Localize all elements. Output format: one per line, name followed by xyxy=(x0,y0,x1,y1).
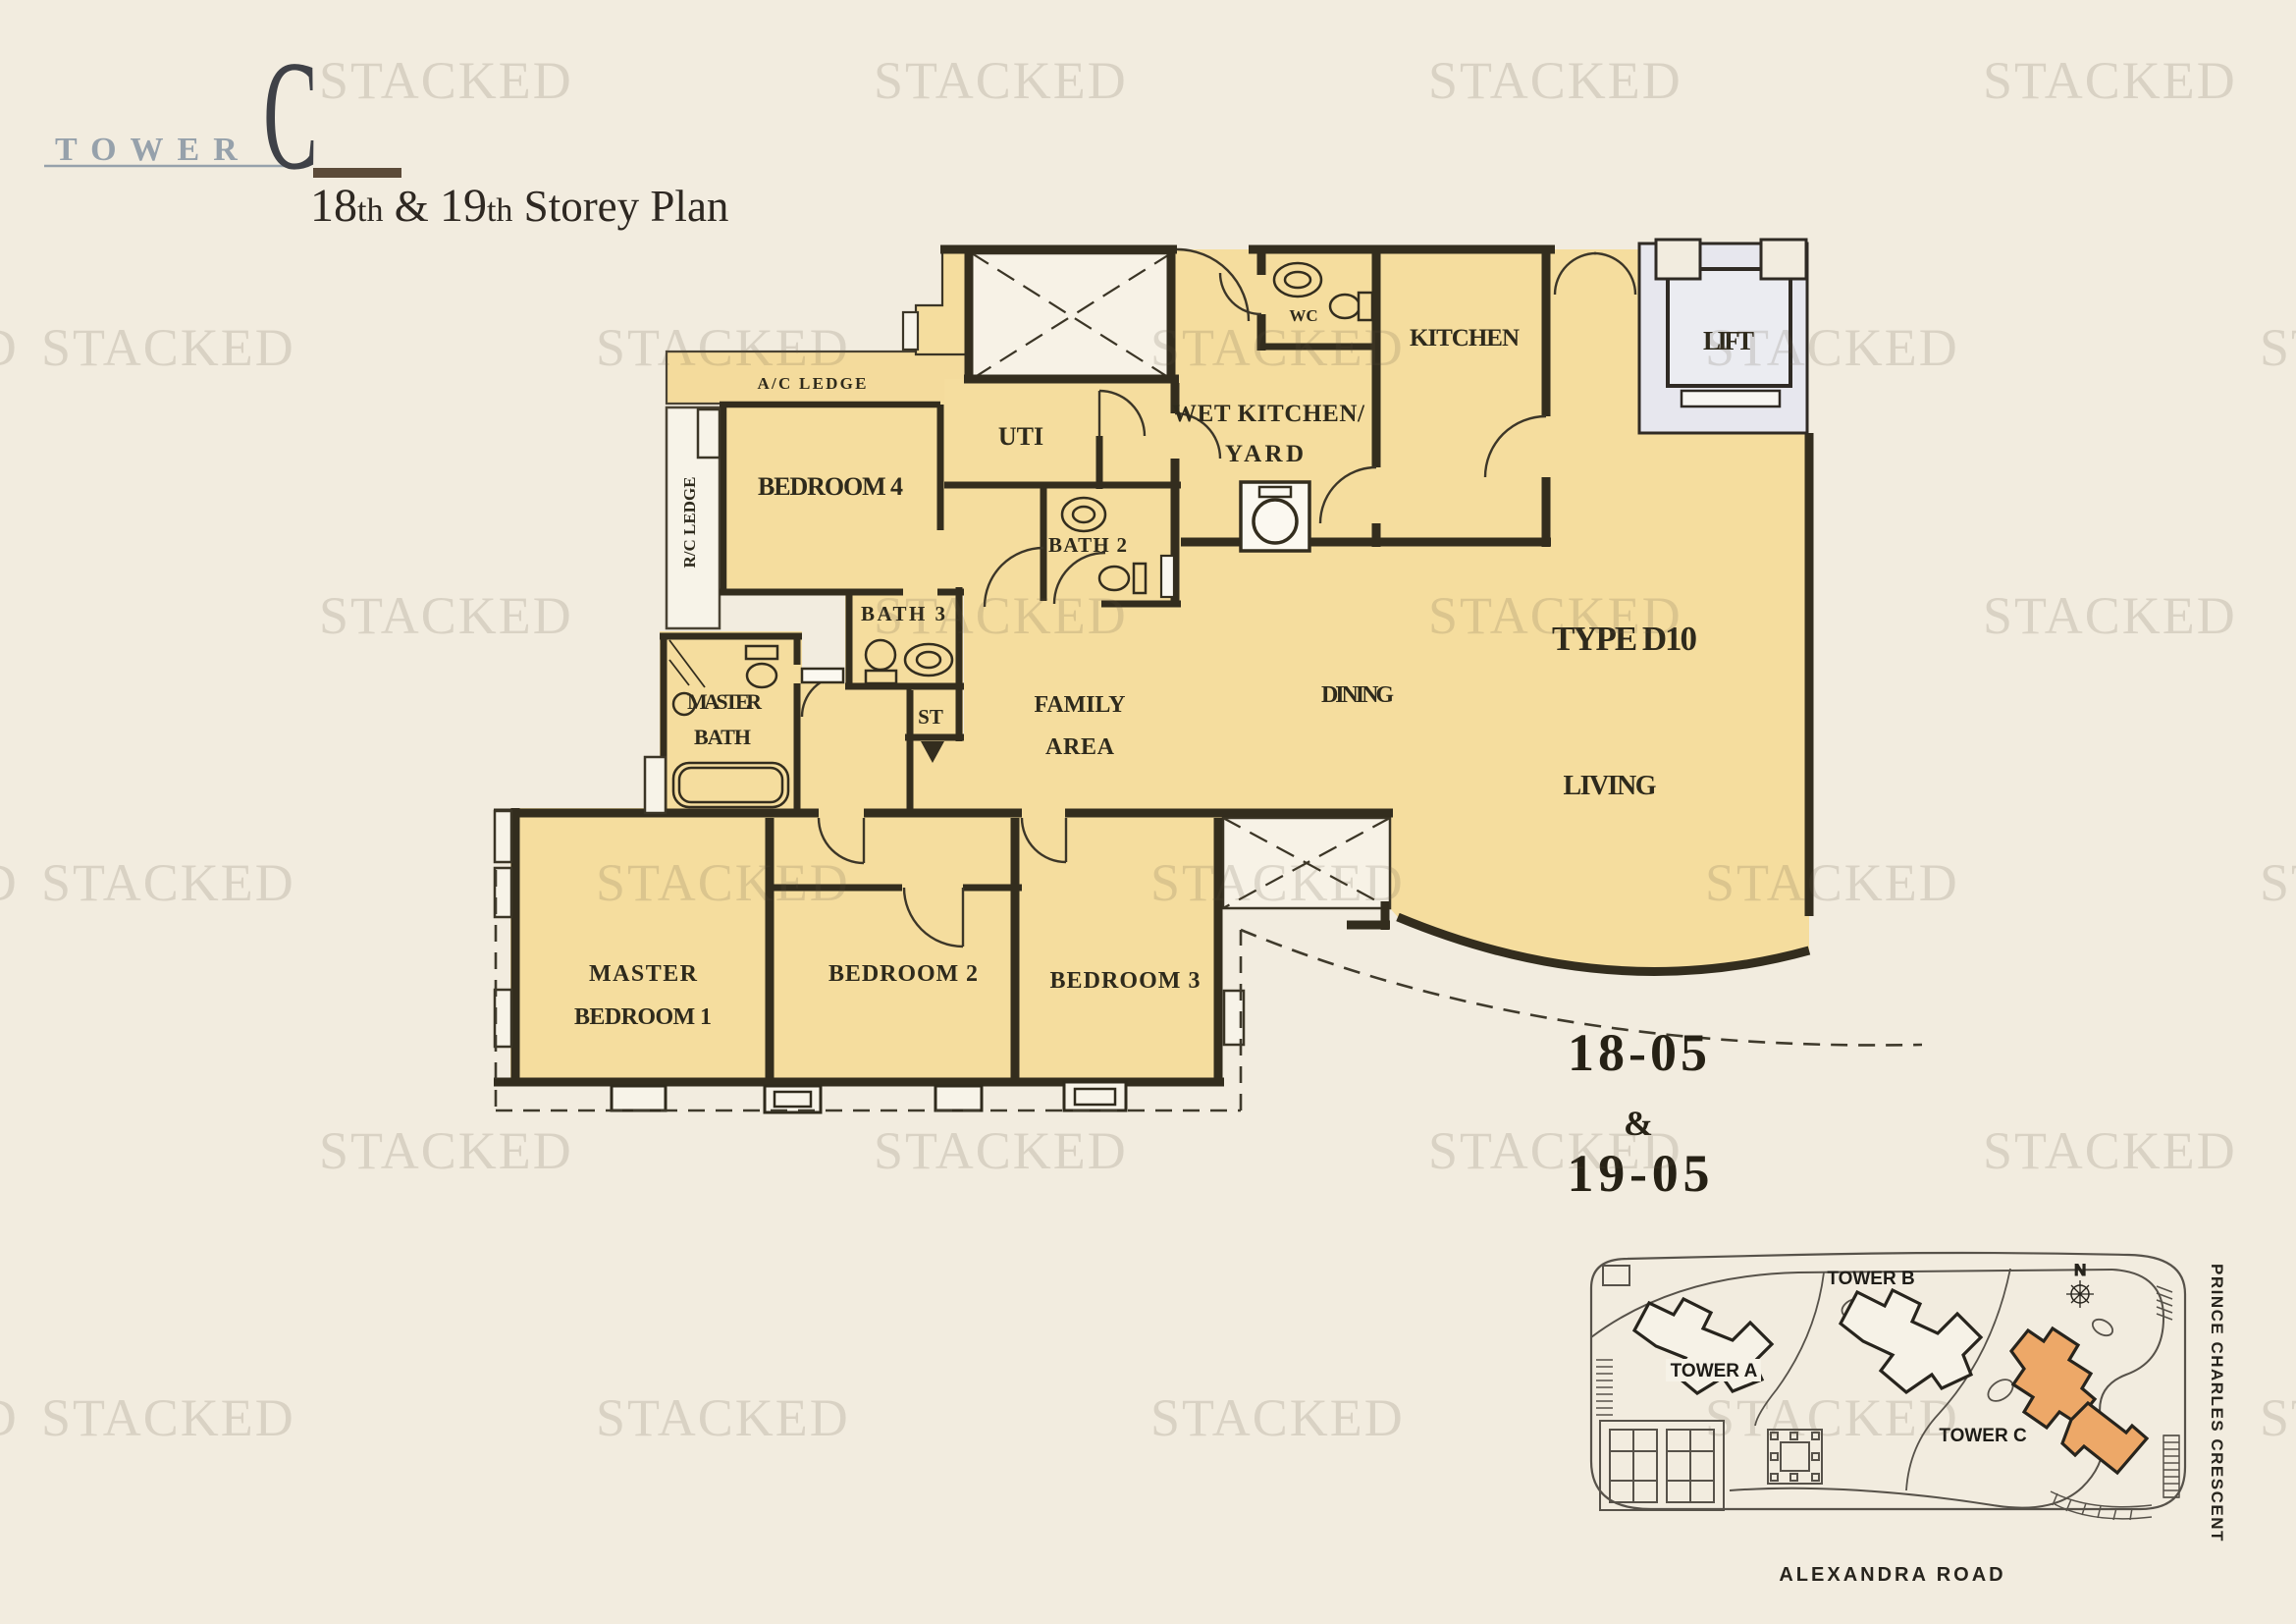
svg-text:STACKED: STACKED xyxy=(1150,853,1405,912)
svg-text:18-05: 18-05 xyxy=(1568,1023,1707,1082)
svg-text:MASTER: MASTER xyxy=(589,961,698,987)
svg-text:STACKED: STACKED xyxy=(319,1121,573,1180)
svg-text:BEDROOM 3: BEDROOM 3 xyxy=(1050,968,1201,994)
svg-text:BEDROOM 2: BEDROOM 2 xyxy=(828,961,978,987)
svg-text:R/C LEDGE: R/C LEDGE xyxy=(680,476,699,568)
svg-text:STACKED: STACKED xyxy=(1428,586,1682,645)
svg-text:STACKED: STACKED xyxy=(1705,1388,1959,1447)
svg-text:STACKED: STACKED xyxy=(41,1388,295,1447)
svg-text:YARD: YARD xyxy=(1225,441,1304,467)
svg-text:STACKED: STACKED xyxy=(2260,1388,2296,1447)
svg-text:STACKED: STACKED xyxy=(1705,318,1959,377)
svg-text:BEDROOM 1: BEDROOM 1 xyxy=(574,1004,712,1030)
svg-text:ST: ST xyxy=(918,705,943,729)
svg-text:BEDROOM 4: BEDROOM 4 xyxy=(758,472,903,501)
svg-text:N: N xyxy=(2074,1261,2086,1279)
svg-text:STACKED: STACKED xyxy=(596,853,850,912)
svg-text:DINING: DINING xyxy=(1321,682,1394,708)
svg-text:WET KITCHEN/: WET KITCHEN/ xyxy=(1172,401,1365,427)
svg-text:STACKED: STACKED xyxy=(1705,853,1959,912)
svg-text:STACKED: STACKED xyxy=(1983,586,2237,645)
svg-text:STACKED: STACKED xyxy=(1150,1388,1405,1447)
svg-text:C: C xyxy=(263,27,318,202)
svg-text:STACKED: STACKED xyxy=(0,853,19,912)
svg-text:TOWER B: TOWER B xyxy=(1827,1269,1914,1289)
svg-text:STACKED: STACKED xyxy=(874,1121,1128,1180)
svg-text:STACKED: STACKED xyxy=(596,1388,850,1447)
svg-text:STACKED: STACKED xyxy=(1428,1121,1682,1180)
svg-text:STACKED: STACKED xyxy=(1983,51,2237,110)
svg-text:ALEXANDRA ROAD: ALEXANDRA ROAD xyxy=(1779,1564,2005,1586)
svg-text:BATH: BATH xyxy=(694,725,751,749)
svg-text:STACKED: STACKED xyxy=(41,318,295,377)
svg-text:TOWER: TOWER xyxy=(55,132,251,168)
svg-text:AREA: AREA xyxy=(1045,734,1115,760)
svg-text:STACKED: STACKED xyxy=(2260,853,2296,912)
svg-text:STACKED: STACKED xyxy=(874,586,1128,645)
svg-text:STACKED: STACKED xyxy=(1428,51,1682,110)
svg-text:STACKED: STACKED xyxy=(1983,1121,2237,1180)
svg-text:BATH 2: BATH 2 xyxy=(1048,533,1127,557)
svg-text:TOWER A: TOWER A xyxy=(1671,1361,1758,1381)
svg-text:PRINCE CHARLES CRESCENT: PRINCE CHARLES CRESCENT xyxy=(2208,1264,2226,1543)
svg-text:MASTER: MASTER xyxy=(687,689,763,714)
svg-text:STACKED: STACKED xyxy=(2260,318,2296,377)
svg-text:STACKED: STACKED xyxy=(319,51,573,110)
svg-text:STACKED: STACKED xyxy=(0,1388,19,1447)
svg-text:STACKED: STACKED xyxy=(874,51,1128,110)
svg-text:KITCHEN: KITCHEN xyxy=(1410,325,1520,352)
svg-text:LIVING: LIVING xyxy=(1564,771,1657,801)
svg-text:STACKED: STACKED xyxy=(0,318,19,377)
svg-text:STACKED: STACKED xyxy=(1150,318,1405,377)
svg-text:STACKED: STACKED xyxy=(319,586,573,645)
svg-text:FAMILY: FAMILY xyxy=(1035,692,1126,718)
svg-text:UTI: UTI xyxy=(998,422,1043,451)
svg-text:STACKED: STACKED xyxy=(41,853,295,912)
svg-text:STACKED: STACKED xyxy=(596,318,850,377)
